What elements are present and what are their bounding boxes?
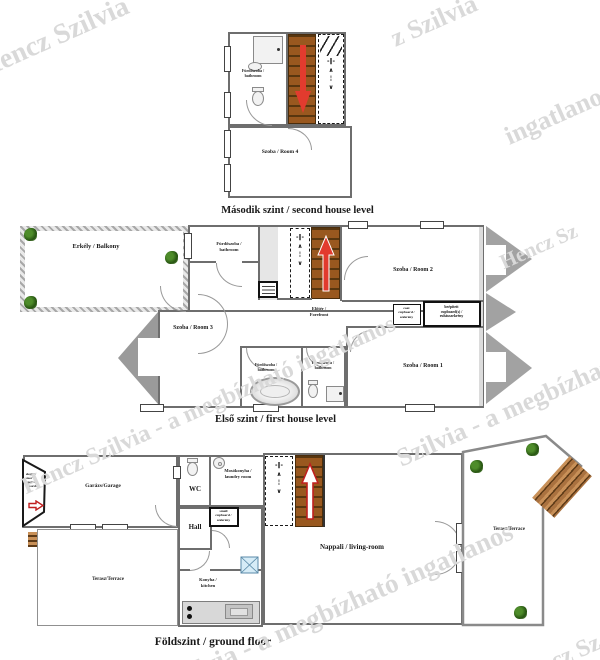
room-label-terrace-left: Terasz/Terrace	[70, 577, 146, 584]
stair-direction-marks: -‖- ∧ ¦ ∨	[318, 58, 344, 93]
floor-plan-image: Hencz Szilvia z Szilvia ingatlanos Hencz…	[0, 0, 600, 660]
window	[224, 130, 231, 158]
room-label-room4: Szoba / Room 4	[240, 149, 320, 156]
watermark-text: Hencz Szilvia	[0, 0, 134, 85]
closet-big-label: beépített cupboard(s) / ruhásszekrény	[425, 305, 478, 319]
room-label-living: Nappali / living-room	[292, 543, 412, 552]
watermark-text: Hencz Sz	[496, 219, 581, 275]
wall	[178, 548, 212, 550]
boiler-closet	[258, 281, 278, 298]
room-label-foyer: Előtér / Forefront	[298, 306, 340, 318]
staircase	[311, 227, 340, 299]
window	[405, 404, 435, 412]
room-label-room1: Szoba / Room 1	[383, 363, 463, 371]
window	[184, 233, 192, 259]
sink-icon	[225, 604, 253, 619]
watermark-text: z Szilvia	[386, 0, 482, 53]
toilet-icon	[308, 384, 318, 398]
closet-small-label: coat cupboard / szekrény	[394, 306, 419, 319]
room-label-laundry: Mosókonyha / laundry room	[212, 468, 264, 480]
staircase	[288, 34, 316, 124]
toilet-icon	[187, 462, 198, 476]
terrace-step	[28, 532, 37, 547]
stair-rail	[323, 455, 325, 527]
window	[140, 404, 164, 412]
watermark-text: ingatlanos	[500, 78, 600, 152]
faucet-dot-icon	[277, 48, 280, 51]
window	[173, 466, 181, 479]
room-label-hall: Hall	[180, 523, 210, 532]
watermark-text: Hencz Sz	[508, 630, 600, 660]
stairs-up-arrow-icon	[301, 461, 319, 521]
room-label-garage: Garázs/Garage	[58, 483, 148, 490]
wall	[188, 261, 216, 263]
room-label-wc: WC	[181, 485, 209, 494]
second-level-title: Második szint / second house level	[190, 204, 405, 218]
window	[348, 221, 368, 229]
room-label-bathroom: Fürdőszoba / bathroom	[230, 68, 276, 78]
roof-gable-right-mid	[486, 293, 516, 331]
dishwasher-icon	[240, 556, 259, 574]
wall	[277, 298, 312, 300]
room-label-bathroom-top: Fürdőszoba / bathroom	[202, 241, 256, 253]
wall	[178, 569, 190, 571]
garage-door-arrow-icon	[27, 500, 45, 511]
closet-ground-label: small cupboard / szekrény	[210, 509, 237, 522]
wall	[340, 227, 342, 301]
stove-burner-icon	[187, 606, 192, 611]
gable-notch	[138, 338, 160, 376]
window	[224, 46, 231, 72]
room-label-balcony: Erkély / Balkony	[50, 243, 142, 251]
room-label-room3: Szoba / Room 3	[148, 325, 238, 333]
window	[224, 164, 231, 192]
stair-direction-marks: -‖- ∧ ¦ ∨	[290, 234, 310, 269]
wall	[242, 261, 258, 263]
room-label-kitchen: Konyha / kitchen	[186, 577, 230, 589]
gable-notch	[486, 352, 506, 382]
stairs-down-arrow-icon	[294, 43, 312, 117]
window	[420, 221, 444, 229]
stair-direction-marks: -‖- ∧ ¦ ∨	[265, 462, 293, 497]
staircase	[295, 455, 323, 527]
room-label-room2: Szoba / Room 2	[373, 267, 453, 275]
wall	[209, 455, 211, 507]
faucet-dot-icon	[339, 392, 342, 395]
roof-hatch	[320, 36, 342, 56]
stove-burner-icon	[187, 614, 192, 619]
stairs-up-arrow-icon	[317, 233, 335, 293]
window	[224, 92, 231, 118]
